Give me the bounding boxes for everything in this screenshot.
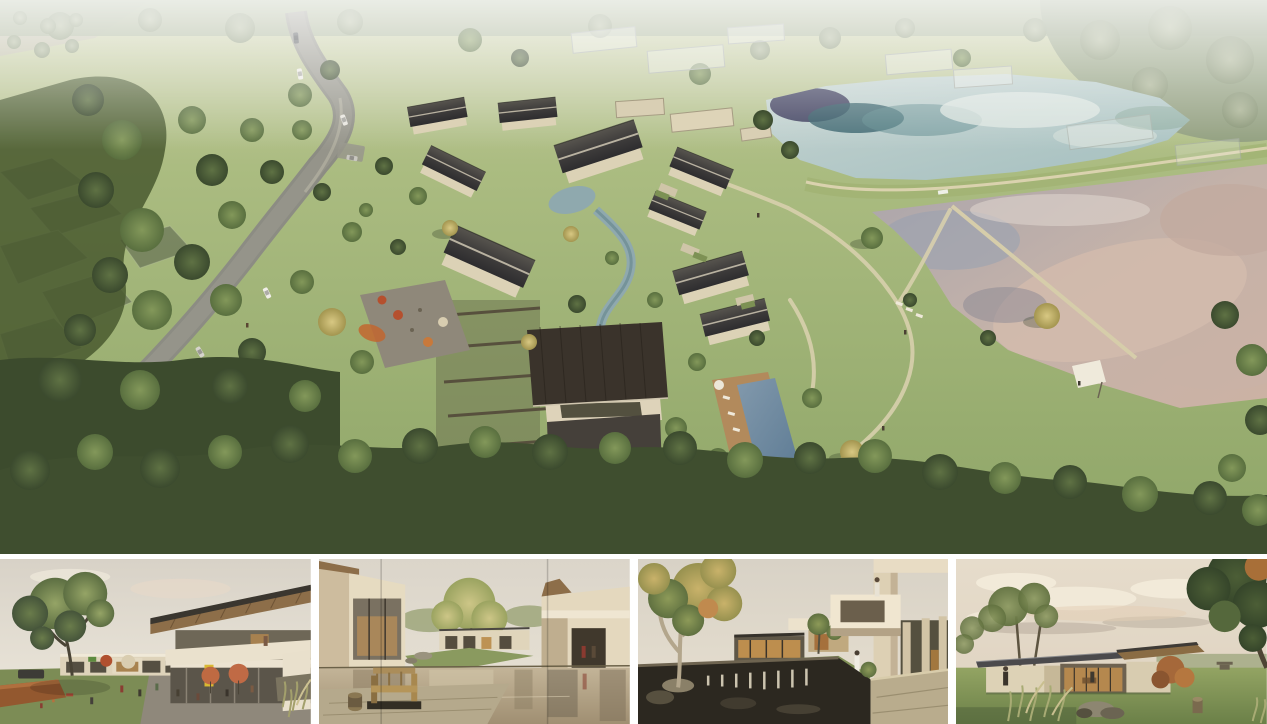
beige-umbrella	[121, 655, 135, 669]
aerial-masterplan-render	[0, 0, 1267, 554]
person	[1003, 666, 1008, 685]
red-umbrella	[100, 655, 112, 667]
green-sign	[88, 657, 96, 662]
balcony-person	[874, 583, 879, 597]
balcony-person	[264, 636, 268, 646]
thumbnail-street-view	[0, 559, 311, 724]
right-building	[541, 579, 629, 678]
far-pavilion	[439, 628, 529, 650]
person-red-coat	[581, 646, 585, 658]
person-brown-coat	[591, 646, 595, 658]
thumbnail-pond-courtyard	[319, 559, 630, 724]
cascade-pond	[638, 658, 871, 724]
thumbnail-lawn-pavilion	[956, 559, 1267, 724]
thumbnail-row	[0, 559, 1267, 724]
thumbnail-cascade-courtyard	[638, 559, 949, 724]
interior-person	[1091, 672, 1095, 683]
render-board	[0, 0, 1267, 724]
